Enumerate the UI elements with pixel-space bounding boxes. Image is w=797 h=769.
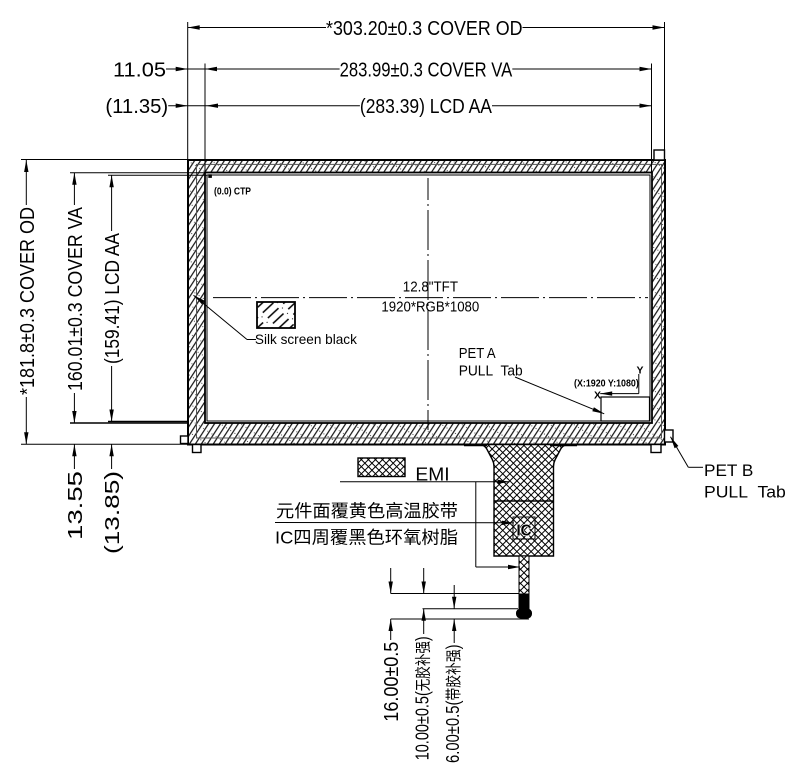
svg-text:Y: Y (636, 365, 643, 377)
svg-text:(283.39) LCD AA: (283.39) LCD AA (360, 96, 493, 118)
svg-text:13.55: 13.55 (65, 471, 87, 540)
svg-text:Silk screen black: Silk screen black (255, 331, 358, 347)
svg-text:元件面覆黄色高温胶带: 元件面覆黄色高温胶带 (276, 501, 458, 521)
svg-text:PULL Tab: PULL Tab (459, 364, 523, 380)
svg-text:PET A: PET A (459, 346, 496, 362)
svg-text:(159.41) LCD AA: (159.41) LCD AA (102, 232, 124, 364)
svg-text:12.8"TFT: 12.8"TFT (403, 279, 458, 295)
svg-text:IC四周覆黑色环氧树脂: IC四周覆黑色环氧树脂 (275, 528, 458, 548)
svg-text:(11.35): (11.35) (105, 96, 168, 118)
svg-text:11.05: 11.05 (113, 59, 166, 81)
svg-text:(13.85): (13.85) (102, 471, 124, 554)
svg-text:10.00±0.5(无胶补强): 10.00±0.5(无胶补强) (412, 636, 433, 760)
svg-text:IC: IC (517, 523, 532, 540)
svg-text:PET B: PET B (704, 461, 753, 480)
svg-text:(X:1920 Y:1080): (X:1920 Y:1080) (574, 378, 639, 390)
svg-text:283.99±0.3 COVER VA: 283.99±0.3 COVER VA (340, 59, 513, 81)
svg-text:X: X (594, 390, 601, 402)
svg-text:*181.8±0.3 COVER OD: *181.8±0.3 COVER OD (17, 207, 39, 395)
svg-text:(0.0) CTP: (0.0) CTP (214, 186, 251, 198)
svg-text:160.01±0.3 COVER VA: 160.01±0.3 COVER VA (65, 206, 87, 391)
svg-text:*303.20±0.3 COVER OD: *303.20±0.3 COVER OD (326, 18, 523, 40)
svg-text:6.00±0.5(带胶补强): 6.00±0.5(带胶补强) (442, 644, 463, 763)
svg-text:1920*RGB*1080: 1920*RGB*1080 (381, 299, 479, 315)
svg-text:16.00±0.5: 16.00±0.5 (381, 642, 403, 722)
svg-text:PULL Tab: PULL Tab (704, 483, 786, 502)
